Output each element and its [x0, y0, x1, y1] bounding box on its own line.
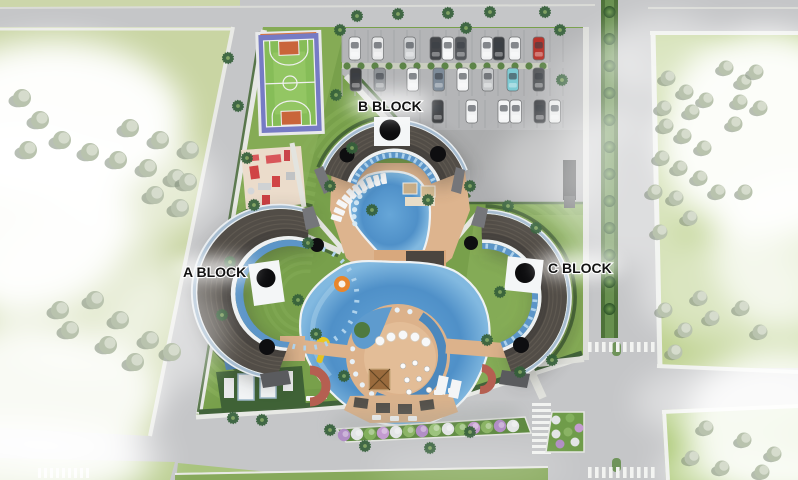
svg-text:A BLOCK: A BLOCK	[183, 264, 246, 280]
svg-text:B BLOCK: B BLOCK	[358, 98, 422, 114]
svg-text:C BLOCK: C BLOCK	[548, 260, 612, 276]
